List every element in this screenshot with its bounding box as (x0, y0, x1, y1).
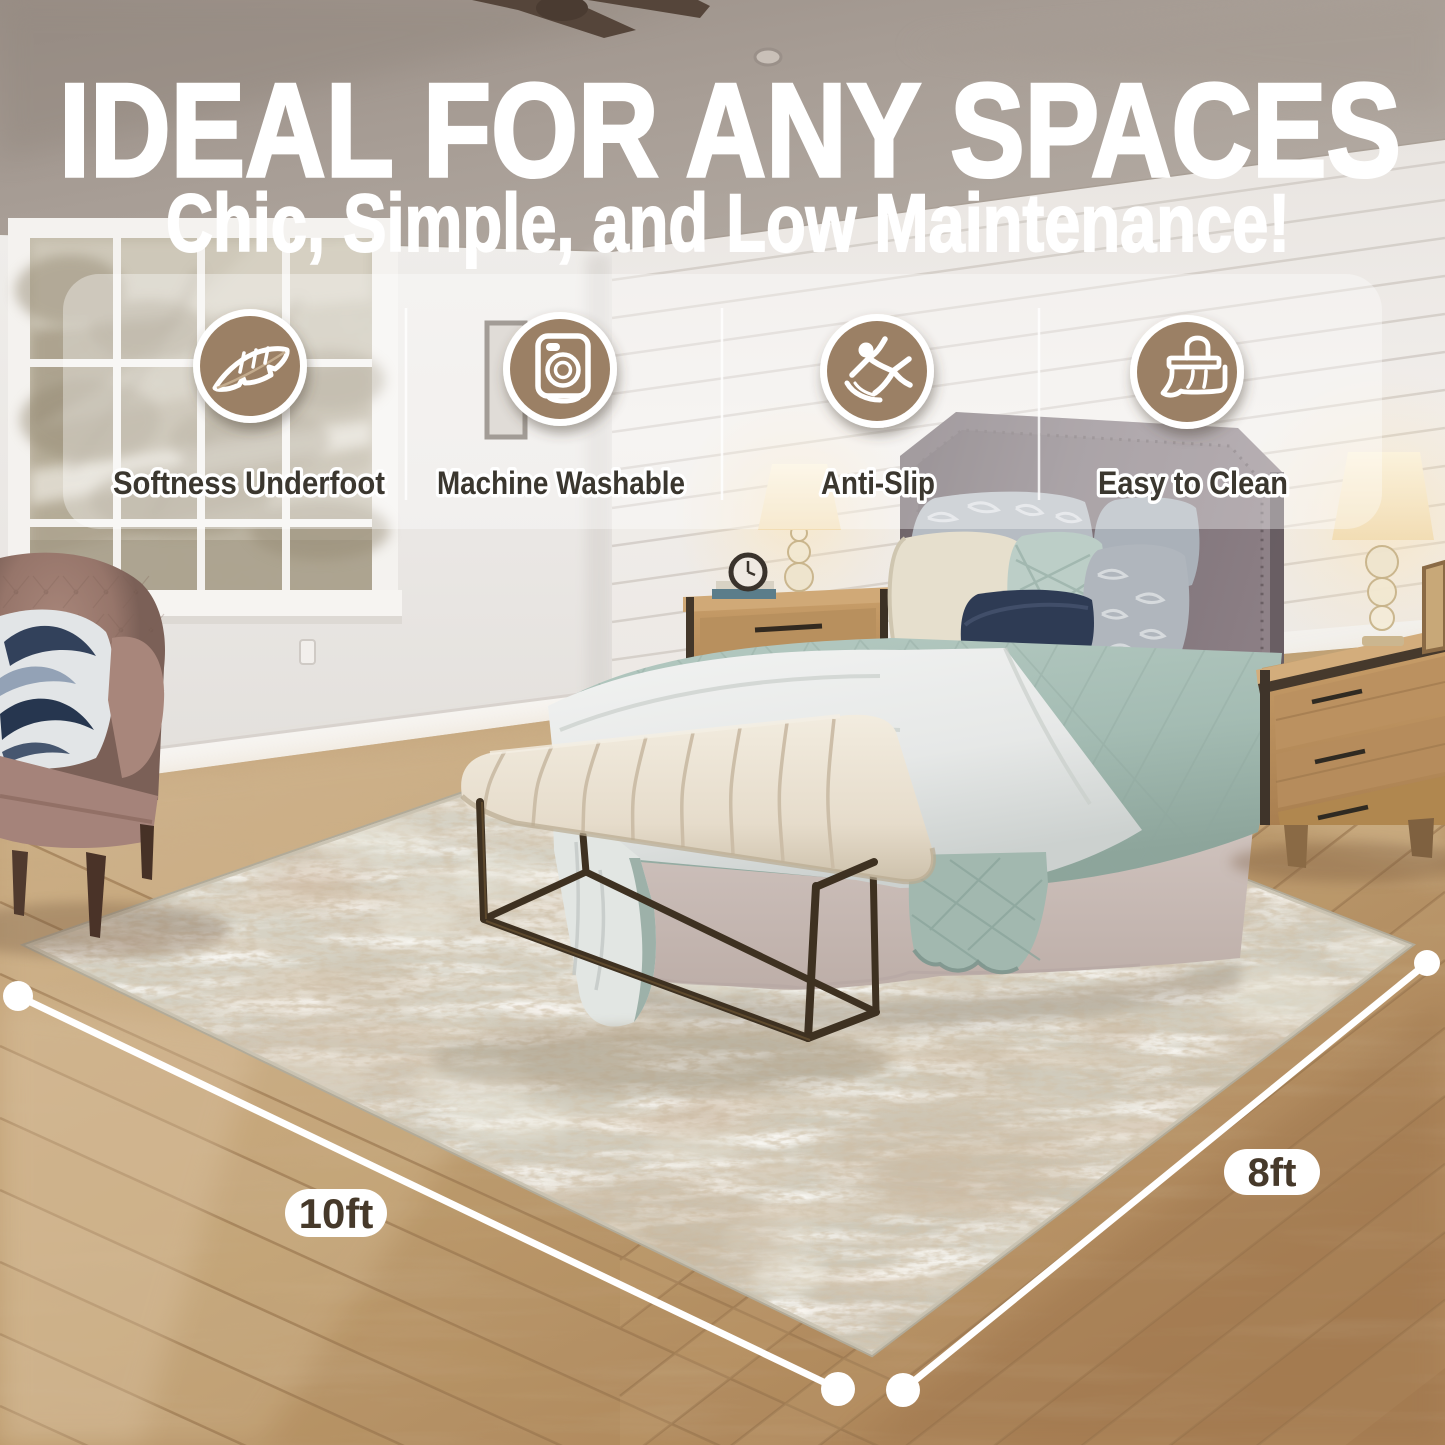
svg-text:Softness Underfoot: Softness Underfoot (113, 465, 385, 501)
svg-text:Anti-Slip: Anti-Slip (821, 465, 935, 501)
svg-text:Machine Washable: Machine Washable (437, 465, 685, 501)
svg-text:10ft: 10ft (299, 1190, 374, 1237)
svg-text:Easy to Clean: Easy to Clean (1098, 465, 1288, 501)
svg-text:Chic, Simple, and Low Maintena: Chic, Simple, and Low Maintenance! (166, 178, 1290, 269)
svg-text:8ft: 8ft (1248, 1151, 1297, 1195)
